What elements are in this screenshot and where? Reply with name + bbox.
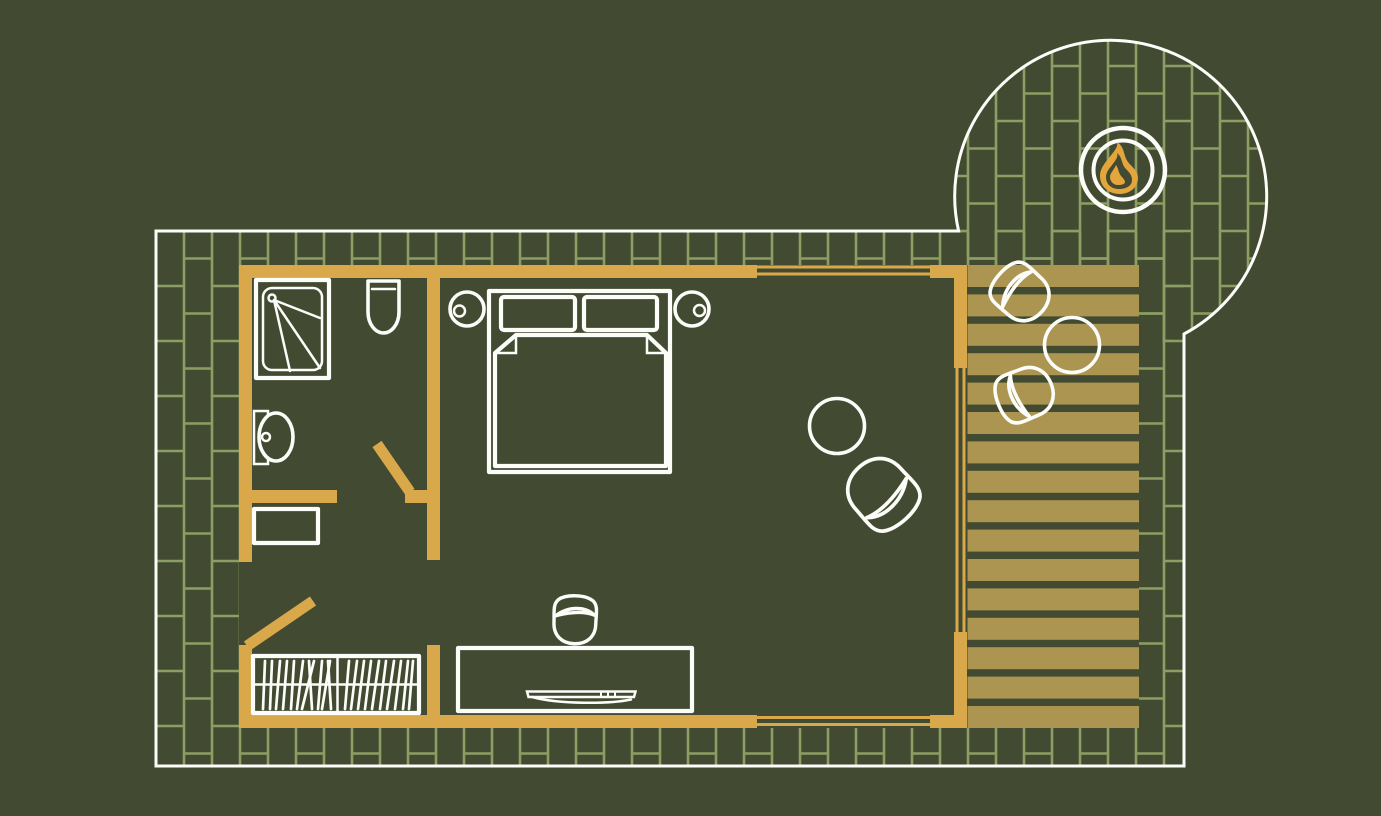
wall-bathroom-divider-lower: [427, 645, 440, 715]
fire-pit: [1081, 128, 1165, 212]
wall-north: [239, 265, 757, 278]
wall-west: [239, 265, 252, 562]
wall-bathroom-south: [252, 490, 337, 503]
wall-bathroom-divider-upper: [427, 278, 440, 560]
wall-east-lower: [954, 632, 967, 728]
wall-south: [239, 715, 757, 728]
wall-east-upper: [954, 265, 967, 368]
floor-plan-canvas: Studio cabin floor plan with bathroom, b…: [0, 0, 1381, 811]
